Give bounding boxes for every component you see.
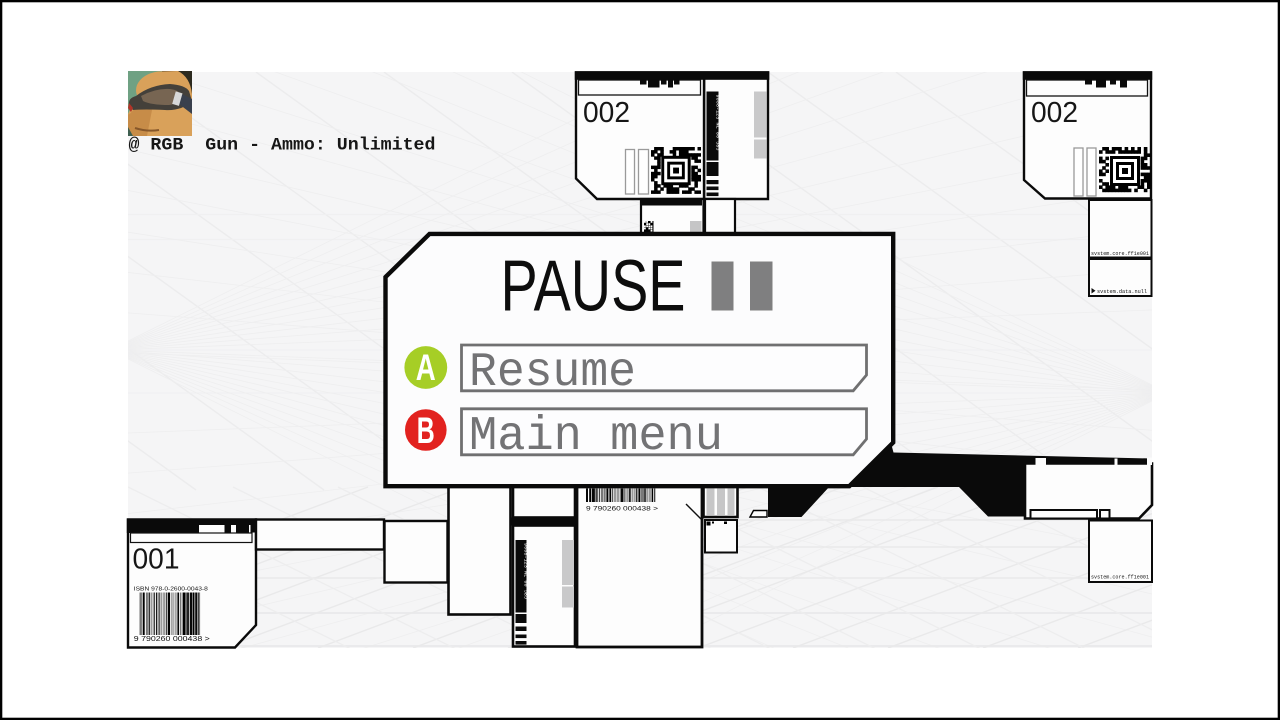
svg-text:svstem.data.null: svstem.data.null <box>1097 288 1148 295</box>
svg-text:9008-123 NL 00 585: 9008-123 NL 00 585 <box>715 95 721 151</box>
svg-text:Main menu: Main menu <box>469 410 723 464</box>
svg-text:002: 002 <box>1031 97 1078 129</box>
svg-text:001: 001 <box>133 543 180 575</box>
svg-text:002: 002 <box>583 97 630 129</box>
svg-text:Resume: Resume <box>469 346 636 400</box>
svg-text:9008-123 NL 00 585: 9008-123 NL 00 585 <box>523 543 529 599</box>
svg-text:svstem.core.ff1e001: svstem.core.ff1e001 <box>1091 574 1150 581</box>
svg-text:ISBN 978-0-2600-0043-8: ISBN 978-0-2600-0043-8 <box>134 587 208 593</box>
svg-text:@ RGB Gun - Ammo: Unlimited: @ RGB Gun - Ammo: Unlimited <box>129 136 436 156</box>
svg-text:A: A <box>416 346 436 388</box>
svg-text:svstem.core.ff1e001: svstem.core.ff1e001 <box>1091 250 1150 257</box>
svg-text:B: B <box>417 409 435 451</box>
svg-text:9 790260 000438 >: 9 790260 000438 > <box>134 634 210 643</box>
svg-text:PAUSE: PAUSE <box>501 247 686 327</box>
svg-text:9 790260 000438 >: 9 790260 000438 > <box>586 506 659 513</box>
